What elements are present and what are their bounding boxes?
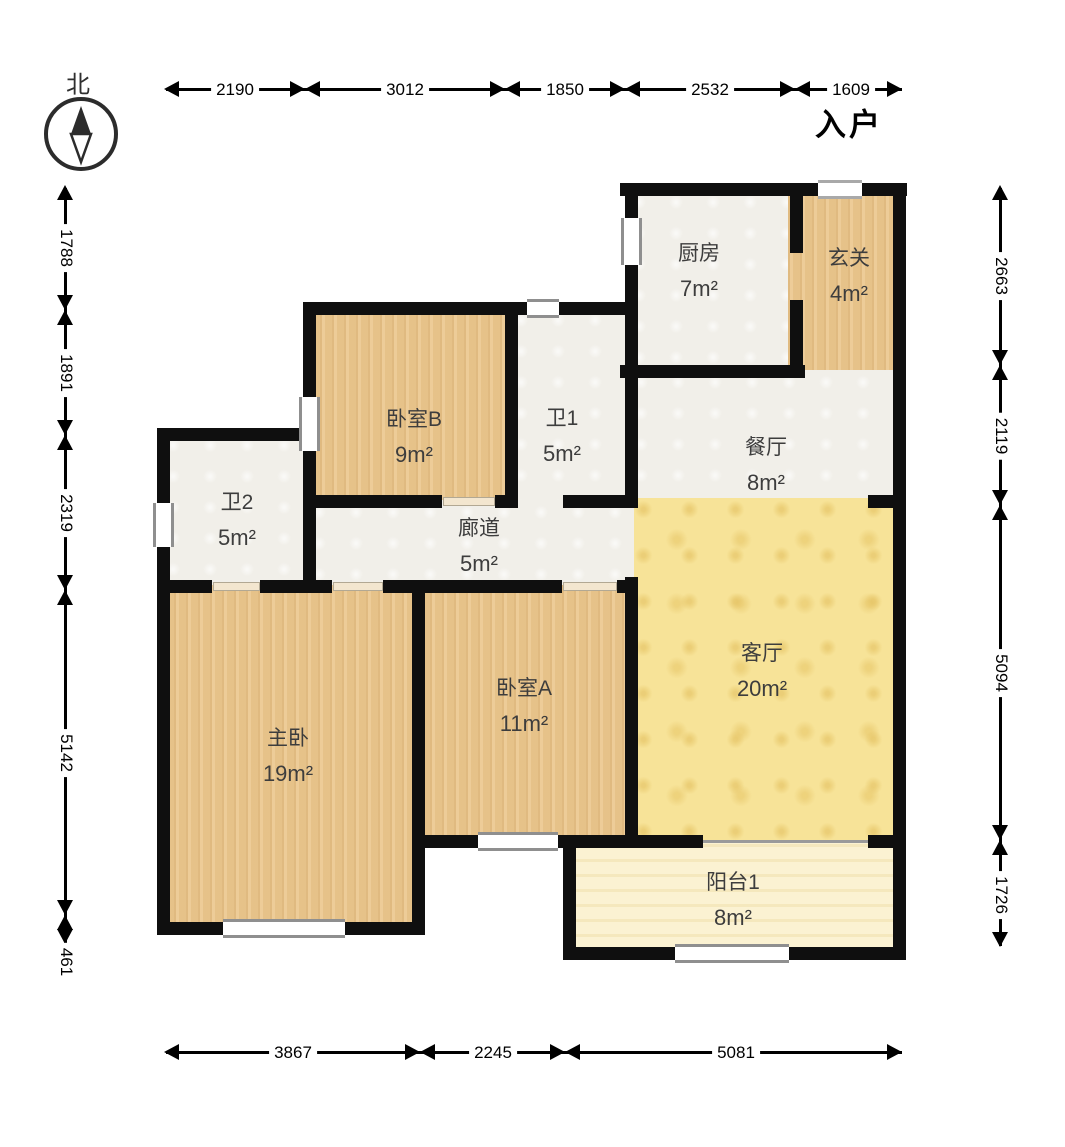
room-label-bedroomA: 卧室A 11m² — [496, 672, 552, 742]
room-name: 玄关 — [828, 242, 870, 276]
window-bath2 — [153, 503, 174, 547]
room-label-bedroomB: 卧室B 9m² — [386, 403, 442, 473]
wall-segment — [260, 580, 332, 593]
window-kitchen — [621, 218, 642, 265]
room-area: 5m² — [218, 520, 256, 556]
wall-segment — [157, 580, 212, 593]
room-area: 7m² — [678, 271, 720, 307]
north-label: 北 — [66, 65, 90, 100]
room-label-foyer: 玄关 4m² — [828, 242, 870, 312]
dim-label: 5081 — [712, 1043, 760, 1063]
wall-segment — [305, 302, 636, 315]
wall-segment — [620, 365, 805, 378]
room-area: 5m² — [543, 436, 581, 472]
dim-label: 3867 — [269, 1043, 317, 1063]
wall-segment — [640, 835, 703, 848]
wall-segment — [505, 315, 518, 508]
room-name: 餐厅 — [745, 431, 787, 465]
window-balcony — [675, 944, 789, 963]
room-label-kitchen: 厨房 7m² — [678, 237, 720, 307]
dim-label: 2190 — [211, 80, 259, 100]
dim-label: 1609 — [827, 80, 875, 100]
balcony-slider-line — [703, 840, 868, 843]
dim-label: 461 — [56, 943, 76, 981]
wall-segment — [383, 580, 562, 593]
wall-segment — [412, 580, 425, 935]
wall-segment — [303, 495, 442, 508]
room-label-dining: 餐厅 8m² — [745, 431, 787, 501]
dim-label: 1788 — [56, 224, 76, 272]
wall-segment — [617, 580, 638, 593]
room-name: 客厅 — [737, 637, 787, 671]
room-label-living: 客厅 20m² — [737, 637, 787, 707]
entrance-door — [818, 180, 862, 199]
room-name: 厨房 — [678, 237, 720, 271]
window-bath1 — [527, 299, 559, 318]
entrance-label: 入户 — [815, 100, 883, 145]
room-label-master: 主卧 19m² — [263, 722, 313, 792]
dim-label: 1726 — [991, 871, 1011, 919]
dim-label: 2319 — [56, 489, 76, 537]
room-area: 20m² — [737, 671, 787, 707]
dim-label: 2119 — [991, 413, 1011, 460]
wall-segment — [563, 495, 638, 508]
room-label-corridor: 廊道 5m² — [458, 512, 500, 582]
room-area: 11m² — [496, 706, 552, 742]
wall-segment — [790, 300, 803, 378]
room-area: 19m² — [263, 756, 313, 792]
room-area: 9m² — [386, 437, 442, 473]
room-label-bath1: 卫1 5m² — [543, 402, 581, 472]
dim-label: 1891 — [56, 349, 76, 397]
dim-label: 5142 — [56, 729, 76, 777]
room-name: 卫1 — [543, 402, 581, 436]
room-area: 4m² — [828, 276, 870, 312]
door-threshold-bath2 — [213, 582, 260, 591]
window-bedroomA — [478, 832, 558, 851]
wall-segment — [868, 835, 906, 848]
door-threshold-master — [333, 582, 383, 591]
wall-segment — [868, 495, 893, 508]
room-name: 主卧 — [263, 722, 313, 756]
dim-label: 1850 — [541, 80, 589, 100]
room-label-balcony: 阳台1 8m² — [706, 866, 760, 936]
dim-label: 2663 — [991, 252, 1011, 300]
room-name: 卧室B — [386, 403, 442, 437]
dim-label: 5094 — [991, 649, 1011, 697]
door-threshold-bedroomA — [563, 582, 617, 591]
room-area: 5m² — [458, 546, 500, 582]
window-bedroomB — [299, 397, 320, 451]
room-area: 8m² — [745, 465, 787, 501]
compass — [44, 97, 118, 171]
wall-segment — [625, 577, 638, 845]
wall-segment — [563, 835, 576, 960]
room-name: 卧室A — [496, 672, 552, 706]
wall-segment — [495, 495, 518, 508]
window-master — [223, 919, 345, 938]
room-area: 8m² — [706, 900, 760, 936]
room-name: 廊道 — [458, 512, 500, 546]
door-threshold-bedroomB — [443, 497, 495, 506]
room-name: 阳台1 — [706, 866, 760, 900]
wall-segment — [620, 183, 818, 196]
room-label-bath2: 卫2 5m² — [218, 486, 256, 556]
room-name: 卫2 — [218, 486, 256, 520]
dim-label: 2245 — [469, 1043, 517, 1063]
wall-segment — [157, 428, 316, 441]
floor-plan-canvas: 北 入户 — [0, 0, 1065, 1147]
dim-label: 2532 — [686, 80, 734, 100]
dim-label: 3012 — [381, 80, 429, 100]
wall-segment — [790, 196, 803, 253]
compass-needle-icon — [48, 101, 114, 167]
